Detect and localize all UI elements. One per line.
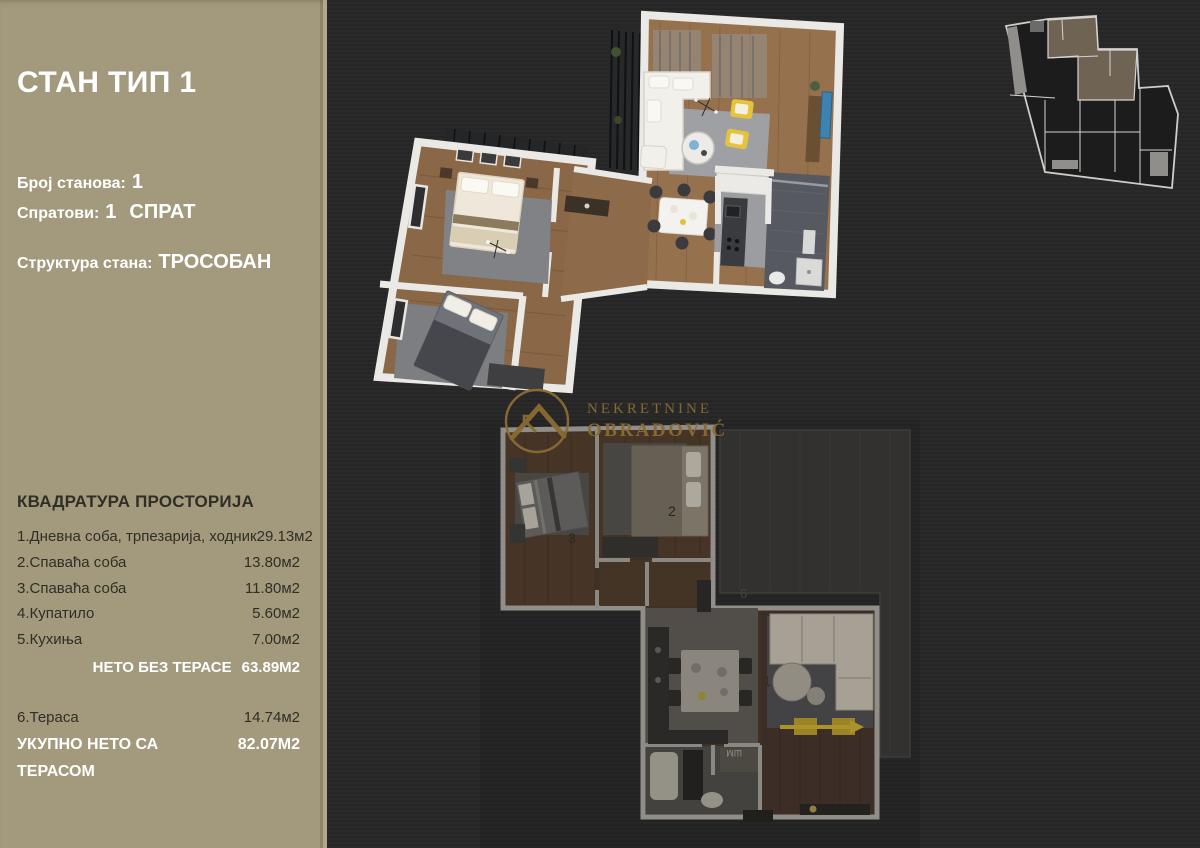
total-value: 82.07М2: [238, 731, 300, 785]
room-area: 11.80м2: [245, 576, 300, 602]
page-title: СТАН ТИП 1: [17, 66, 197, 100]
logo-text: NEKRETNINE OBRADOVIĆ: [587, 399, 728, 443]
structure-value: ТРОСОБАН: [158, 251, 271, 273]
room-name: 4.Купатило: [17, 601, 94, 627]
tv-screen: [820, 92, 832, 138]
room-name: 6.Тераса: [17, 705, 79, 731]
logo-mark-icon: [502, 386, 572, 456]
apartments-label: Број станова:: [17, 175, 126, 192]
room-name: 5.Кухиња: [17, 627, 82, 653]
floors-label: Спратови:: [17, 205, 99, 222]
dim-overlay: [480, 420, 920, 848]
bathroom: [764, 172, 830, 291]
upper-floor-plan-3d: [360, 0, 880, 420]
area-row: 2.Спаваћа соба 13.80м2: [17, 550, 300, 576]
room-name: 2.Спаваћа соба: [17, 550, 126, 576]
corridor: [561, 168, 652, 300]
structure-line: Структура стана:ТРОСОБАН: [17, 248, 271, 278]
toilet: [769, 272, 785, 285]
area-row: 3.Спаваћа соба 11.80м2: [17, 576, 300, 602]
apartment-info: Број станова:1 Спратови:1СПРАТ Структура…: [17, 168, 271, 278]
area-row: 5.Кухиња 7.00м2: [17, 627, 300, 653]
lower-floor-plan-top: 1 2 3 6 ШМ: [480, 420, 920, 848]
agency-logo: NEKRETNINE OBRADOVIĆ: [502, 386, 728, 456]
info-sidebar: СТАН ТИП 1 Број станова:1 Спратови:1СПРА…: [0, 0, 327, 848]
total-label: УКУПНО НЕТО СА ТЕРАСОМ: [17, 731, 230, 785]
floors-suffix: СПРАТ: [129, 201, 195, 223]
floors-value: 1: [105, 201, 116, 223]
mini-key-plan: [1000, 0, 1200, 210]
room-area: 7.00м2: [252, 627, 300, 653]
room-areas-list: КВАДРАТУРА ПРОСТОРИЈА 1.Дневна соба, трп…: [17, 492, 300, 785]
room-area: 29.13м2: [257, 524, 313, 550]
net-label: НЕТО БЕЗ ТЕРАСЕ: [93, 655, 232, 681]
total-area-row: УКУПНО НЕТО СА ТЕРАСОМ 82.07М2: [17, 731, 300, 785]
room-area: 13.80м2: [244, 550, 300, 576]
room-name: 3.Спаваћа соба: [17, 576, 126, 602]
areas-heading: КВАДРАТУРА ПРОСТОРИЈА: [17, 492, 300, 512]
room-name: 1.Дневна соба, трпезарија, ходник: [17, 524, 257, 550]
net-value: 63.89М2: [242, 655, 300, 681]
kitchen: [714, 173, 770, 268]
net-area-row: НЕТО БЕЗ ТЕРАСЕ 63.89М2: [17, 655, 300, 681]
logo-line-2: OBRADOVIĆ: [587, 419, 728, 443]
bath-shelf: [802, 230, 815, 255]
area-row: 4.Купатило 5.60м2: [17, 601, 300, 627]
dining-table: [658, 197, 708, 235]
room-area: 14.74м2: [244, 705, 300, 731]
terrace-area-row: 6.Тераса 14.74м2: [17, 705, 300, 731]
flyer-page: СТАН ТИП 1 Број станова:1 Спратови:1СПРА…: [0, 0, 1200, 848]
room-area: 5.60м2: [252, 601, 300, 627]
area-row: 1.Дневна соба, трпезарија, ходник 29.13м…: [17, 524, 300, 550]
floors-line: Спратови:1СПРАТ: [17, 198, 271, 228]
apartments-value: 1: [132, 171, 143, 193]
apartments-count-line: Број станова:1: [17, 168, 271, 198]
plant: [810, 81, 820, 91]
logo-line-1: NEKRETNINE: [587, 399, 728, 419]
structure-label: Структура стана:: [17, 255, 152, 272]
